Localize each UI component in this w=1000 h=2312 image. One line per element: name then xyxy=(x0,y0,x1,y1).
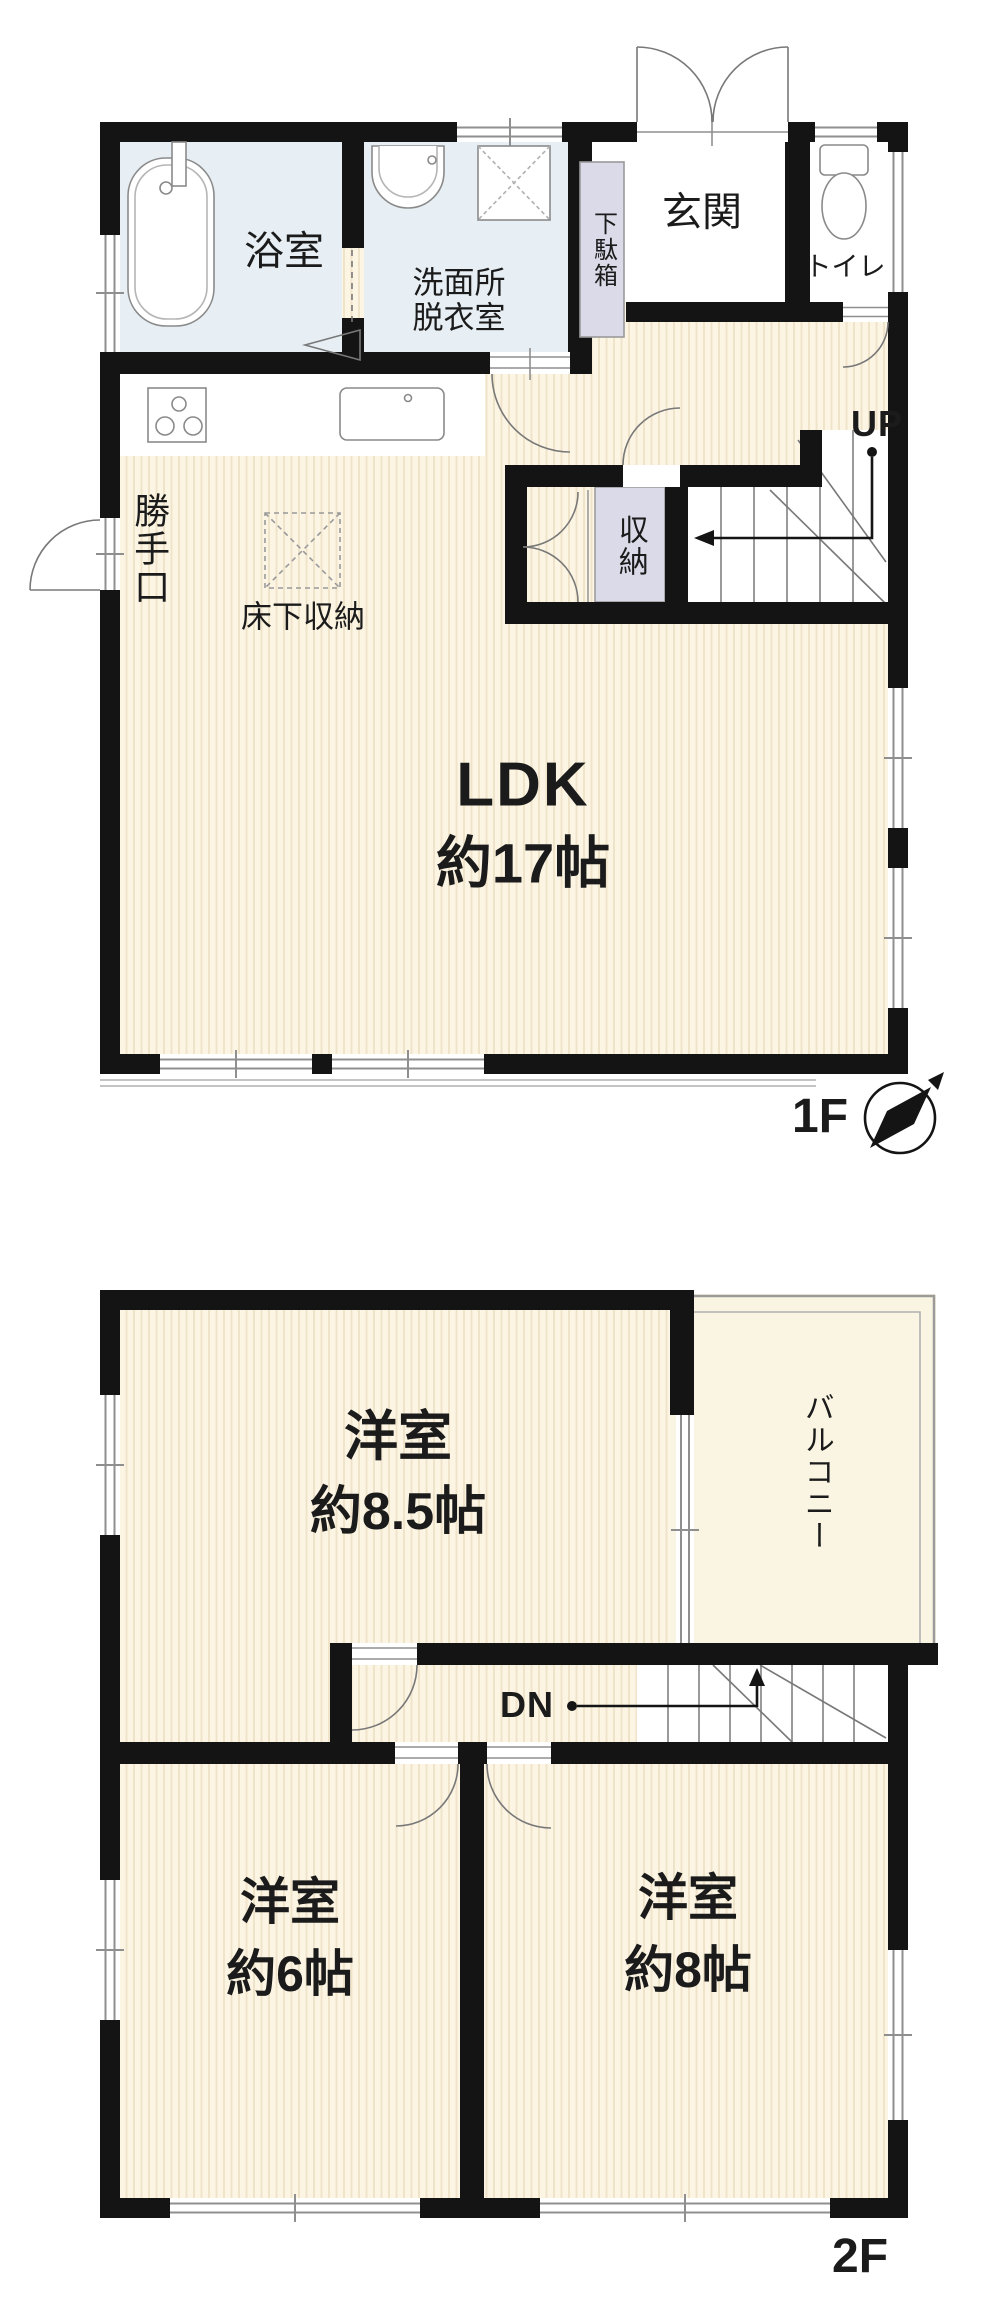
floor-plan-page: 浴室 洗面所 脱衣室 玄関 トイレ 下駄箱 勝手口 床下収納 収納 UP LDK… xyxy=(0,0,1000,2312)
balcony-label: バルコニー xyxy=(799,1392,833,1552)
floor-plan-drawing xyxy=(0,0,1000,2312)
bedroom-85-size-label: 約8.5帖 xyxy=(310,1483,486,1541)
floor2-label: 2F xyxy=(832,2230,888,2284)
bedroom-8-size-label: 約8帖 xyxy=(624,1942,752,1998)
compass-icon xyxy=(865,1072,944,1153)
entrance-label: 玄関 xyxy=(662,191,742,236)
storage-label: 収納 xyxy=(613,514,647,578)
underfloor-storage-label: 床下収納 xyxy=(241,601,365,636)
bedroom-85-label: 洋室 xyxy=(344,1407,452,1467)
bathtub-icon xyxy=(128,142,214,326)
washroom-label-line1: 洗面所 xyxy=(413,266,506,301)
stairs-up-label: UP xyxy=(851,404,903,444)
toilet-icon xyxy=(820,145,868,239)
toilet-label: トイレ xyxy=(805,252,886,282)
ldk-size-label: 約17帖 xyxy=(436,833,610,896)
washbasin-icon xyxy=(372,146,444,208)
bedroom-6-size-label: 約6帖 xyxy=(226,1946,354,2002)
shoe-cabinet-label: 下駄箱 xyxy=(589,211,616,289)
bedroom-6-label: 洋室 xyxy=(240,1874,340,1930)
bath-label: 浴室 xyxy=(244,230,324,275)
washroom-label-line2: 脱衣室 xyxy=(413,301,506,336)
washroom-label: 洗面所 脱衣室 xyxy=(413,266,506,335)
floor1-label: 1F xyxy=(792,1090,848,1144)
washing-machine-pan-icon xyxy=(478,146,550,220)
kitchen-sink-icon xyxy=(340,388,444,440)
ldk-label: LDK xyxy=(456,750,589,819)
bedroom-8-label: 洋室 xyxy=(638,1870,738,1926)
gas-stove-icon xyxy=(148,388,206,442)
back-door-label: 勝手口 xyxy=(129,492,169,606)
stairs-down-label: DN xyxy=(500,1685,554,1725)
